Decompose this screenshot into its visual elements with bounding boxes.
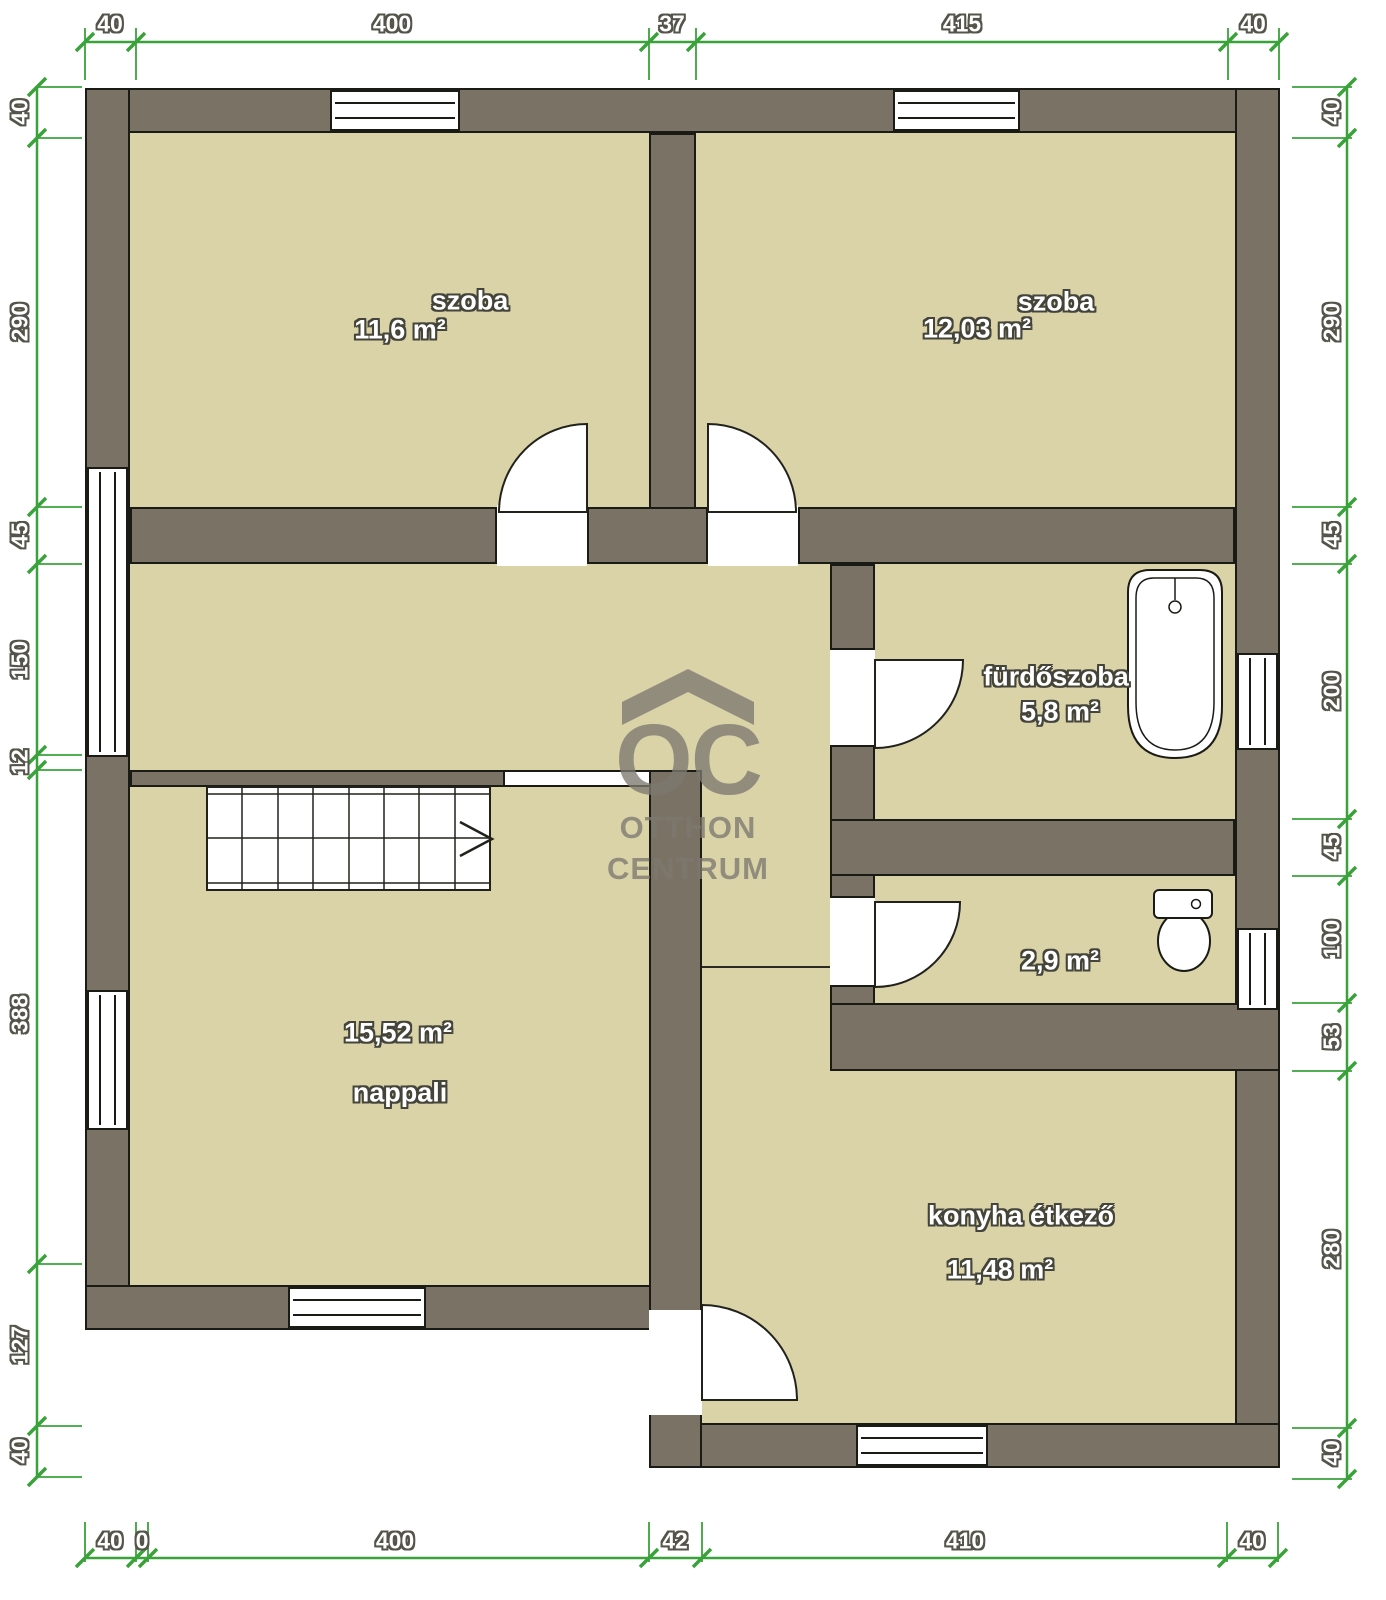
room-label-wc-area: 2,9 m² [1021, 946, 1099, 977]
dim-left-0: 40 [7, 99, 34, 125]
dim-bottom-0: 40 [97, 1528, 123, 1555]
dim-left-5: 388 [7, 995, 34, 1033]
dim-bottom-4: 410 [946, 1528, 984, 1555]
dim-right-6: 53 [1319, 1024, 1346, 1050]
room-label-bedroom2-area: 12,03 m² [923, 314, 1031, 345]
dim-top-3: 415 [943, 11, 981, 38]
dim-right-2: 45 [1319, 522, 1346, 548]
dim-bottom-5: 40 [1239, 1528, 1265, 1555]
room-label-bathroom-area: 5,8 m² [1021, 697, 1099, 728]
dim-right-7: 280 [1319, 1230, 1346, 1268]
dim-right-0: 40 [1319, 99, 1346, 125]
dim-bottom-3: 42 [662, 1528, 688, 1555]
watermark-monogram: OC [528, 712, 848, 808]
door-swing-wc [875, 902, 960, 987]
room-label-kitchen-area: 11,48 m² [947, 1255, 1054, 1286]
dim-right-5: 100 [1319, 920, 1346, 958]
door-swing-bathroom [875, 660, 963, 748]
dim-right-1: 290 [1319, 303, 1346, 341]
door-swing-entrance [702, 1305, 797, 1400]
toilet-icon [1154, 890, 1212, 971]
dim-top-2: 37 [659, 11, 685, 38]
bathtub-icon [1128, 570, 1222, 758]
floor-plan: OC OTTHON CENTRUM szoba 11,6 m² szoba 12… [0, 0, 1386, 1600]
door-swing-bedroom2 [708, 424, 796, 512]
door-swing-bedroom1 [499, 424, 587, 512]
watermark-line1: OTTHON [528, 808, 848, 849]
dim-left-4: 12 [7, 749, 34, 775]
dim-bottom-2: 400 [376, 1528, 414, 1555]
room-label-living-name: nappali [353, 1078, 448, 1109]
dim-left-3: 150 [7, 641, 34, 679]
dim-left-1: 290 [7, 303, 34, 341]
dim-right-4: 45 [1319, 834, 1346, 860]
dim-right-8: 40 [1319, 1440, 1346, 1466]
room-label-kitchen-name: konyha étkező [928, 1201, 1114, 1232]
dim-bottom-1: 0 [136, 1528, 149, 1555]
dim-left-2: 45 [7, 522, 34, 548]
watermark-line2: CENTRUM [528, 849, 848, 890]
room-label-bedroom1-name: szoba [432, 286, 509, 317]
room-label-bathroom-name: fürdőszoba [983, 662, 1129, 693]
dim-left-7: 40 [7, 1438, 34, 1464]
dim-top-0: 40 [97, 11, 123, 38]
dim-top-1: 400 [373, 11, 411, 38]
dim-right-3: 200 [1319, 672, 1346, 710]
stairs-icon [207, 787, 492, 890]
room-label-bedroom1-area: 11,6 m² [354, 315, 446, 346]
room-label-living-area: 15,52 m² [344, 1018, 452, 1049]
watermark-otthon-centrum: OC OTTHON CENTRUM [528, 668, 848, 890]
dim-left-6: 127 [7, 1326, 34, 1364]
dim-top-4: 40 [1240, 11, 1266, 38]
